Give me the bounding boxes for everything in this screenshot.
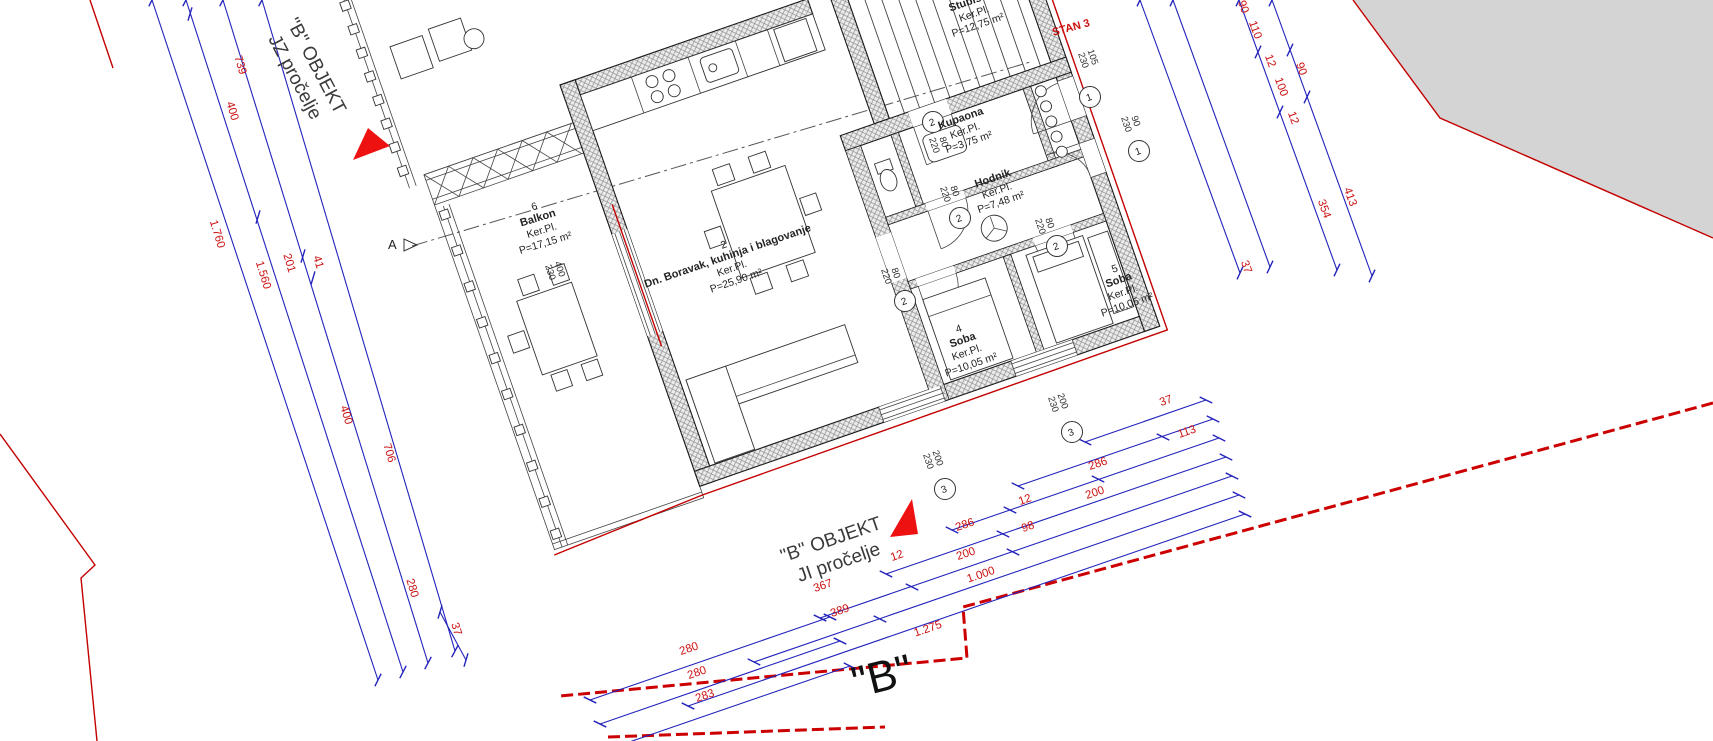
dim-tick xyxy=(1079,439,1092,445)
dim-tick xyxy=(1239,511,1252,517)
dim-tick xyxy=(594,721,607,727)
dim-value: 201 xyxy=(280,252,297,274)
dim-tick xyxy=(834,638,847,644)
dim-tick xyxy=(1233,492,1246,498)
dim-value: 113 xyxy=(1176,424,1197,441)
dim-value: 1.275 xyxy=(912,619,943,640)
dim-tick xyxy=(400,666,406,678)
dim-value: 413 xyxy=(1341,186,1359,208)
dim-tick xyxy=(584,697,597,703)
dim-value: 37 xyxy=(1158,393,1174,409)
dim-value: 12 xyxy=(1262,53,1278,69)
dim-tick xyxy=(1207,416,1220,422)
dim-line xyxy=(688,514,1245,706)
dim-tick xyxy=(682,703,695,709)
dim-value: 400 xyxy=(337,404,354,426)
dim-value: 98 xyxy=(1020,519,1036,535)
dim-value: 706 xyxy=(380,442,397,464)
floorplan-drawing: 7394001.7601.560201414007062803790110121… xyxy=(0,0,1713,741)
dim-value: 12 xyxy=(1017,492,1033,508)
dim-value: 100 xyxy=(1272,76,1290,98)
dim-tick xyxy=(1220,454,1233,460)
neighbor-furniture xyxy=(389,13,488,79)
neighbor-building xyxy=(1353,0,1713,238)
dim-tick xyxy=(1213,435,1226,441)
balcony-table xyxy=(491,263,603,400)
dim-tick xyxy=(464,653,468,666)
opening-dims: 200230 xyxy=(1045,392,1070,414)
dim-value: 1.760 xyxy=(207,219,227,250)
opening-dims: 90230 xyxy=(1118,112,1143,134)
dim-value: 1.560 xyxy=(253,260,273,291)
section-marker-a: A xyxy=(388,237,397,252)
dim-tick xyxy=(375,674,381,687)
dim-value: 739 xyxy=(231,54,248,76)
dim-line xyxy=(1272,0,1372,276)
dim-value: 280 xyxy=(403,577,420,599)
dim-tick xyxy=(748,659,761,665)
dim-value: 90 xyxy=(1293,61,1309,77)
dim-line xyxy=(1173,0,1270,267)
dim-value: 400 xyxy=(223,100,240,122)
dim-tick xyxy=(1200,397,1213,403)
dim-tick xyxy=(220,0,227,6)
floorplan-canvas: 7394001.7601.560201414007062803790110121… xyxy=(0,0,1713,741)
dim-value: 41 xyxy=(310,254,325,270)
dim-tick xyxy=(880,571,893,577)
dim-line xyxy=(1239,0,1337,270)
dim-line xyxy=(600,641,840,724)
dim-tick xyxy=(1004,507,1017,513)
dim-line xyxy=(1140,0,1240,273)
neighbor-wall xyxy=(333,0,416,190)
toilet-icon xyxy=(874,159,899,194)
dim-tick xyxy=(425,657,432,669)
dim-value: 12 xyxy=(1285,110,1301,126)
dim-value: 200 xyxy=(955,545,977,563)
dim-line xyxy=(886,457,1226,574)
opening-dims: 200230 xyxy=(920,449,945,471)
dim-value: 110 xyxy=(1246,19,1264,40)
dim-value: 286 xyxy=(1087,455,1109,473)
dim-value: 286 xyxy=(954,516,976,534)
dim-value: 90 xyxy=(1235,0,1251,15)
ventilation-icon xyxy=(978,212,1011,245)
dim-tick xyxy=(1226,473,1239,479)
dim-value: 1.000 xyxy=(965,565,996,586)
dim-value: 389 xyxy=(829,602,851,620)
dim-tick xyxy=(1012,483,1025,489)
dim-value: 280 xyxy=(678,640,700,658)
dim-tick xyxy=(438,605,442,618)
opening-dims: 105230 xyxy=(1075,48,1100,70)
dim-tick xyxy=(311,271,315,284)
dim-value: 280 xyxy=(686,664,708,682)
dim-tick xyxy=(452,645,459,657)
